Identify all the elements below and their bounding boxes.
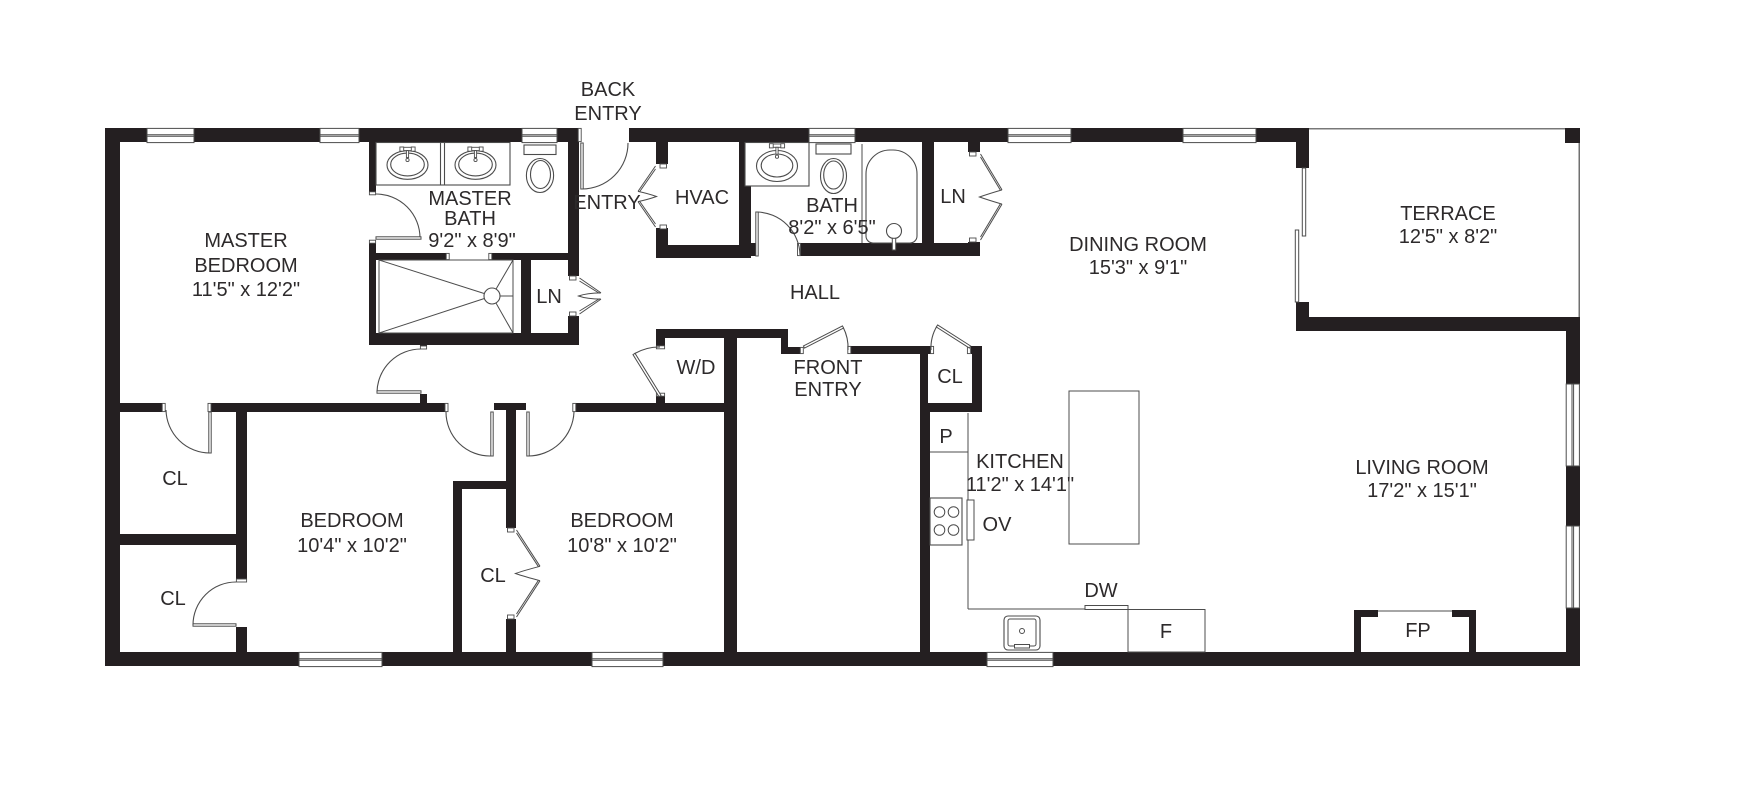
svg-text:OV: OV (983, 514, 1013, 536)
svg-text:15'3" x 9'1": 15'3" x 9'1" (1089, 257, 1188, 279)
svg-text:KITCHEN: KITCHEN (976, 451, 1064, 473)
svg-text:11'2" x 14'1": 11'2" x 14'1" (966, 474, 1074, 496)
svg-text:ENTRY: ENTRY (573, 192, 640, 214)
svg-text:P: P (939, 426, 952, 448)
svg-text:CL: CL (162, 468, 188, 490)
svg-text:BEDROOM: BEDROOM (570, 510, 673, 532)
svg-text:BEDROOM: BEDROOM (194, 255, 297, 277)
svg-text:FP: FP (1405, 620, 1431, 642)
svg-text:CL: CL (480, 565, 506, 587)
svg-text:BATH: BATH (444, 208, 496, 230)
svg-text:FRONT: FRONT (794, 357, 863, 379)
svg-text:F: F (1160, 621, 1172, 643)
svg-text:HALL: HALL (790, 282, 840, 304)
svg-text:10'8" x 10'2": 10'8" x 10'2" (567, 535, 677, 557)
svg-text:BATH: BATH (806, 195, 858, 217)
svg-text:9'2" x 8'9": 9'2" x 8'9" (428, 230, 515, 252)
svg-text:BEDROOM: BEDROOM (300, 510, 403, 532)
svg-text:ENTRY: ENTRY (794, 379, 861, 401)
svg-text:DINING ROOM: DINING ROOM (1069, 234, 1207, 256)
svg-text:BACK: BACK (581, 79, 636, 101)
svg-text:LIVING ROOM: LIVING ROOM (1355, 457, 1488, 479)
svg-text:MASTER: MASTER (428, 188, 511, 210)
svg-text:11'5" x 12'2": 11'5" x 12'2" (192, 279, 300, 301)
svg-text:17'2" x 15'1": 17'2" x 15'1" (1367, 480, 1477, 502)
svg-text:LN: LN (536, 286, 562, 308)
svg-text:ENTRY: ENTRY (574, 103, 641, 125)
svg-text:10'4" x 10'2": 10'4" x 10'2" (297, 535, 407, 557)
svg-text:TERRACE: TERRACE (1400, 203, 1496, 225)
svg-text:MASTER: MASTER (204, 230, 287, 252)
svg-text:12'5" x 8'2": 12'5" x 8'2" (1399, 226, 1498, 248)
svg-text:DW: DW (1084, 580, 1117, 602)
svg-text:8'2" x 6'5": 8'2" x 6'5" (788, 217, 875, 239)
svg-text:CL: CL (160, 588, 186, 610)
svg-text:CL: CL (937, 366, 963, 388)
svg-text:W/D: W/D (677, 357, 716, 379)
svg-text:HVAC: HVAC (675, 187, 729, 209)
svg-text:LN: LN (940, 186, 966, 208)
